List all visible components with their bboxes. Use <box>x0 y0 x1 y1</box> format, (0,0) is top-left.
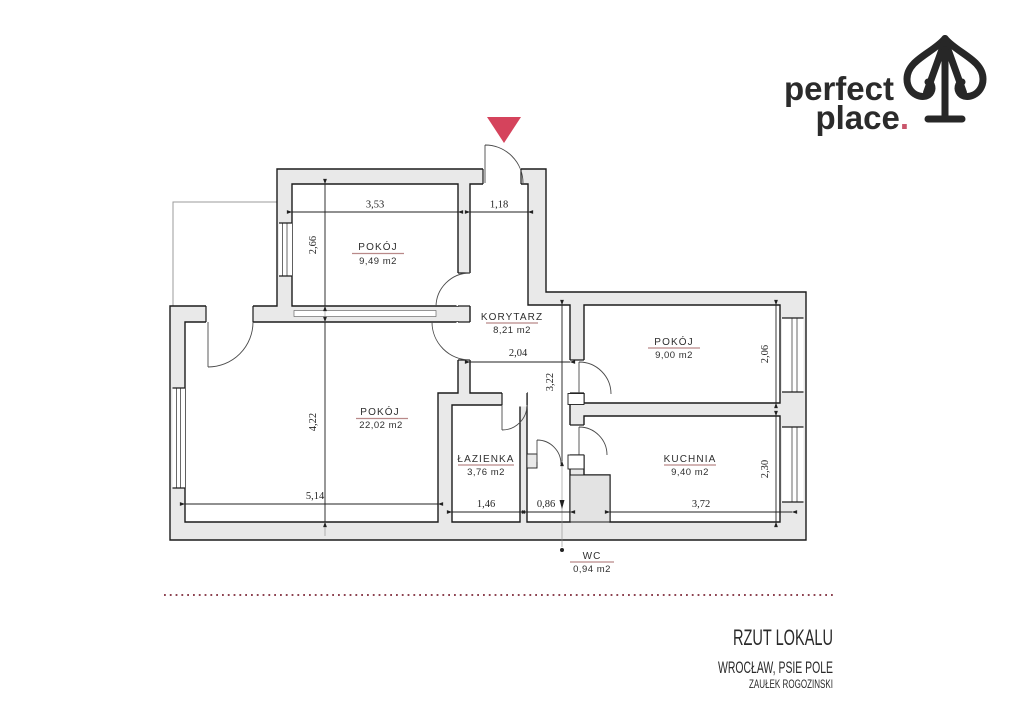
wc-pointer-arrow <box>560 500 565 509</box>
room-label-pokoj-2202: POKÓJ 22,02 m2 <box>356 405 408 431</box>
window-big-room <box>173 388 186 488</box>
room-label-pokoj-949: POKÓJ 9,49 m2 <box>352 240 404 267</box>
dim-label: 0,86 <box>537 499 555 510</box>
room-label-wc: WC 0,94 m2 <box>560 548 614 575</box>
footer-street: ZAUŁEK ROGOZINSKI <box>749 677 833 691</box>
dimension-wc-width: 0,86 <box>527 499 570 512</box>
balcony-outline <box>173 202 277 306</box>
room-area: 3,76 m2 <box>467 467 505 478</box>
dim-label: 2,04 <box>509 348 528 359</box>
room-area: 9,49 m2 <box>359 256 397 267</box>
room-name: KORYTARZ <box>481 312 543 323</box>
dimension-big-room-width: 5,14 <box>185 491 438 504</box>
dim-label: 3,72 <box>692 499 710 510</box>
dim-label: 3,53 <box>366 200 384 211</box>
room-name: ŁAZIENKA <box>457 454 514 465</box>
logo-icon <box>907 39 983 120</box>
door-kitchen <box>568 425 607 469</box>
dim-label: 2,30 <box>760 460 771 478</box>
door-big-room <box>432 322 472 360</box>
dim-label: 2,66 <box>308 236 319 254</box>
door-wc <box>527 440 561 468</box>
door-entrance <box>483 145 523 186</box>
dimension-korytarz-height: 3,22 <box>545 305 562 461</box>
room-name: POKÓJ <box>360 405 399 418</box>
dim-label: 2,06 <box>760 345 771 363</box>
dimension-bathroom-width: 1,46 <box>452 499 520 512</box>
door-balcony <box>206 304 253 367</box>
logo-word-place: place. <box>815 99 909 136</box>
dim-label: 1,18 <box>490 200 508 211</box>
door-room900 <box>568 360 611 405</box>
room-label-pokoj-900: POKÓJ 9,00 m2 <box>648 335 700 361</box>
room-area: 9,00 m2 <box>655 350 693 361</box>
dim-label: 1,46 <box>477 499 495 510</box>
room-label-lazienka: ŁAZIENKA 3,76 m2 <box>457 454 514 478</box>
window-kitchen <box>782 427 804 502</box>
window-room900 <box>782 318 804 392</box>
window-top-room <box>279 223 292 276</box>
logo-period: . <box>900 99 909 136</box>
walls <box>170 169 806 540</box>
room-area: 0,94 m2 <box>573 564 611 575</box>
shaft-block <box>570 475 610 522</box>
room-label-korytarz: KORYTARZ 8,21 m2 <box>481 312 543 336</box>
dimension-kitchen-width: 3,72 <box>610 499 792 512</box>
dimension-top-room-width: 3,53 <box>292 200 458 213</box>
room-name: WC <box>583 551 602 562</box>
room-area: 8,21 m2 <box>493 325 531 336</box>
footer-location: WROCŁAW, PSIE POLE <box>718 658 833 677</box>
dimension-korytarz-width: 2,04 <box>470 348 570 362</box>
room-label-kuchnia: KUCHNIA 9,40 m2 <box>664 454 717 478</box>
dimension-room900-height: 2,06 <box>760 305 776 403</box>
dimension-entry-width: 1,18 <box>470 200 528 213</box>
room-name: KUCHNIA <box>664 454 717 465</box>
wc-leader-dot <box>560 548 564 552</box>
room-name: POKÓJ <box>358 240 397 253</box>
entrance-marker-icon <box>487 117 521 143</box>
wall-cavity <box>294 311 436 317</box>
dimension-kitchen-height: 2,30 <box>760 416 776 522</box>
footer-title: RZUT LOKALU <box>733 625 833 650</box>
logo: perfect place. <box>784 39 983 137</box>
door-top-room <box>436 273 472 307</box>
floor-plan-canvas: perfect place. <box>0 0 1024 724</box>
dim-label: 3,22 <box>545 373 556 391</box>
dimension-top-room-height: 2,66 <box>308 184 325 306</box>
dim-label: 4,22 <box>308 413 319 431</box>
room-area: 22,02 m2 <box>359 420 403 431</box>
room-name: POKÓJ <box>654 335 693 348</box>
dim-label: 5,14 <box>306 491 325 502</box>
room-area: 9,40 m2 <box>671 467 709 478</box>
